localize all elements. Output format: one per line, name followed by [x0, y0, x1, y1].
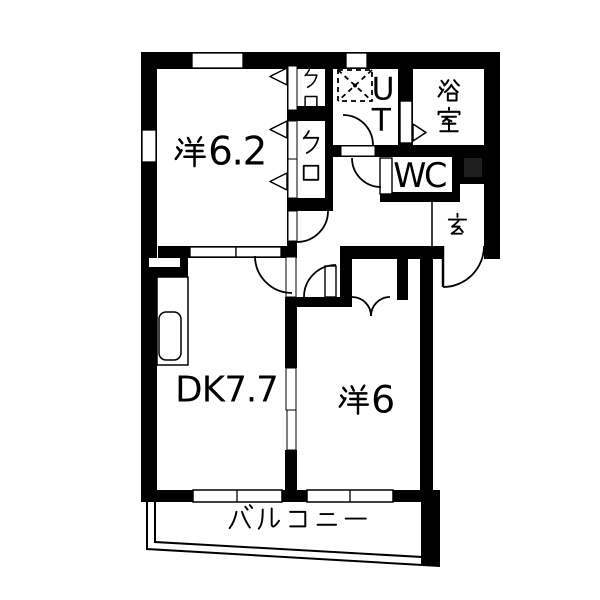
svg-text:W: W — [393, 156, 426, 195]
sliding-door-room1-dk-b — [236, 247, 281, 257]
triangle-closet-upper-icon — [270, 68, 287, 85]
room-label-dining-kitchen: DK7.7 — [175, 370, 279, 411]
svg-text:K: K — [202, 370, 227, 411]
kitchen-sink — [159, 312, 181, 360]
floor-plan-canvas: 6.2 UT WC DK7.7 6 — [0, 0, 600, 600]
wall-closet-east — [325, 65, 333, 211]
wall-dk-hall-upper — [285, 297, 297, 368]
closet-upper-door-slot — [288, 66, 297, 110]
sliding-door-dk-room2-a — [286, 368, 296, 410]
svg-text:T: T — [371, 103, 392, 139]
triangle-closet-lower-bottom-icon — [270, 173, 287, 190]
doorway-utility — [341, 146, 375, 156]
wall-room2-closet-west — [340, 259, 352, 307]
svg-text:7: 7 — [224, 370, 247, 411]
room-label-western-room-2: 6 — [340, 377, 395, 421]
svg-text:2: 2 — [243, 130, 268, 175]
door-arc-closet-fold-right — [371, 297, 390, 316]
door-arc-room1 — [297, 211, 328, 242]
window-left — [142, 130, 156, 162]
floor-plan-drawing: 6.2 UT WC DK7.7 6 — [0, 0, 600, 600]
entrance-doorway-gap — [443, 246, 484, 259]
room-label-closet-lower — [304, 131, 319, 180]
door-arc-closet-fold-left — [352, 297, 371, 316]
window-top-left — [192, 53, 243, 68]
door-arc-toilet — [352, 158, 381, 187]
triangle-bathroom-door-icon — [413, 124, 426, 141]
closet-lower-door-slot-a — [288, 121, 297, 159]
walls — [141, 52, 500, 566]
sliding-door-room1-dk-a — [190, 247, 236, 257]
room-label-toilet: WC — [393, 156, 447, 195]
wall-outer-right-lower — [420, 246, 433, 502]
pipe-shaft — [464, 158, 482, 177]
kitchen-stove-notch — [149, 258, 180, 267]
door-arc-utility — [343, 115, 373, 145]
room-label-utility: UT — [371, 72, 395, 139]
wall-balcony-right — [421, 490, 440, 566]
svg-text:D: D — [175, 370, 202, 411]
washing-machine-center-dot — [353, 84, 357, 88]
svg-text:6: 6 — [371, 377, 395, 421]
toilet-door-leaf — [380, 158, 392, 194]
svg-text:C: C — [424, 156, 447, 195]
wall-room2-closet-east — [397, 259, 408, 300]
svg-text:7: 7 — [256, 370, 279, 411]
doorway-room1-hall — [288, 211, 297, 241]
balcony-parapet-inner — [155, 502, 440, 558]
wall-room2-door-bar — [297, 297, 340, 307]
doorway-dk-hall — [286, 257, 296, 297]
room2-door-leaf — [325, 266, 336, 297]
wall-closet-south — [287, 198, 333, 211]
bathroom-door-panel — [400, 101, 412, 143]
closet-lower-door-slot-b — [288, 159, 297, 198]
room-label-entrance — [449, 214, 466, 234]
room-label-western-room-1: 6.2 — [176, 130, 268, 175]
window-top-middle — [346, 53, 367, 68]
svg-text:6: 6 — [208, 130, 233, 175]
room-label-balcony — [230, 505, 366, 529]
entrance-step-notch — [460, 184, 484, 202]
room-label-closet-upper — [305, 70, 317, 108]
room-label-bathroom — [439, 80, 460, 131]
sliding-door-dk-room2-b — [287, 410, 296, 450]
wall-dk-hall-lower — [285, 450, 297, 502]
triangle-closet-lower-top-icon — [270, 121, 287, 138]
